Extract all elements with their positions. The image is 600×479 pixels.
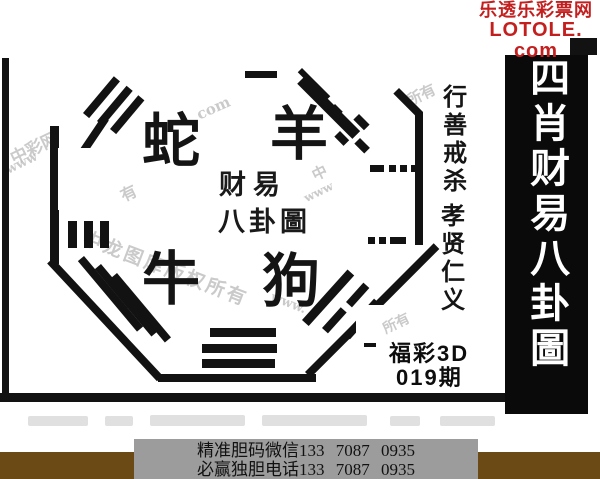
faint-text-artifact xyxy=(150,415,245,426)
trigram-left-bar xyxy=(68,221,77,248)
brand-site-name: 乐透乐彩票网 xyxy=(474,1,598,20)
panel-left-border xyxy=(2,58,9,402)
side-banner: 四肖财易八卦圖 xyxy=(505,55,588,414)
trigram-bottom-right-stripe xyxy=(322,307,347,333)
footer-contact-box: 精准胆码微信133 7087 0935 必赢独胆电话133 7087 0935 xyxy=(134,439,478,479)
trigram-right-dash xyxy=(390,237,406,244)
footer-line2: 必赢独胆电话133 7087 0935 xyxy=(134,460,478,479)
trigram-right-dash xyxy=(400,165,407,172)
faint-text-artifact xyxy=(262,415,367,426)
motto-bottom: 孝贤仁义 xyxy=(437,203,465,315)
trigram-right-dash xyxy=(368,237,375,244)
center-title-line1: 财易 xyxy=(219,163,287,202)
trigram-right-dash xyxy=(389,165,396,172)
faint-text-artifact xyxy=(390,416,420,426)
motto-top: 行善戒杀 xyxy=(439,84,467,196)
lottery-bagua-image: 中彩网 www com 中 所有 中龙图库版权所有 www 有 www. xyxy=(0,0,600,479)
brand-site-url: LOTOLE. com xyxy=(474,20,598,62)
side-banner-title: 四肖财易八卦圖 xyxy=(525,57,568,414)
zodiac-snake: 蛇 xyxy=(142,112,200,170)
trigram-left-bar xyxy=(100,221,109,248)
zodiac-ox: 牛 xyxy=(142,250,200,308)
frame-bottom-edge xyxy=(158,374,316,382)
faint-text-artifact xyxy=(105,416,133,426)
trigram-top-line xyxy=(245,71,277,78)
trigram-bottom-bar xyxy=(202,344,277,353)
brand-block: 乐透乐彩票网 LOTOLE. com xyxy=(474,1,598,62)
panel-bottom-border xyxy=(0,393,505,402)
faint-text-artifact xyxy=(28,416,88,426)
trigram-right-dash xyxy=(411,165,418,172)
issue-number: 019期 xyxy=(396,360,463,392)
trigram-bottom-right-stripe xyxy=(346,283,369,308)
watermark: 有 xyxy=(116,178,141,207)
frame-right-vertical xyxy=(415,112,423,245)
trigram-bottom-bar xyxy=(202,359,275,368)
trigram-right-dash xyxy=(379,237,386,244)
zodiac-goat: 羊 xyxy=(270,105,328,163)
zodiac-dog: 狗 xyxy=(262,252,320,310)
footer-line1: 精准胆码微信133 7087 0935 xyxy=(134,441,478,460)
trigram-bottom-bar xyxy=(210,328,276,337)
center-title-line2: 八卦圖 xyxy=(218,200,311,239)
trigram-left-bar xyxy=(84,221,93,248)
trigram-right-dash xyxy=(370,165,384,172)
faint-text-artifact xyxy=(440,416,495,426)
white-patch xyxy=(58,148,92,210)
trigram-top-right-stripe xyxy=(354,138,370,154)
issue-dash xyxy=(364,343,376,347)
